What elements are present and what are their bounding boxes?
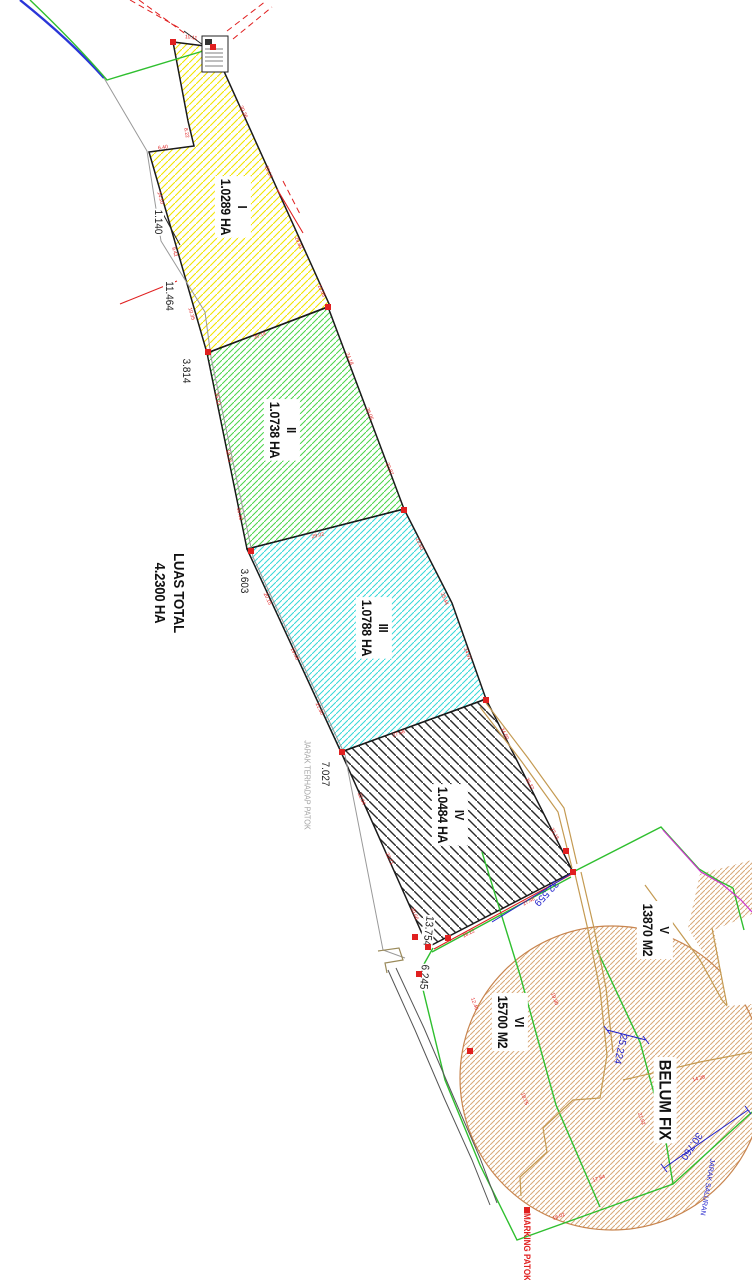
parcel-label-1: I 1.0289 HA: [215, 176, 251, 238]
belum-fix-label: BELUM FIX: [653, 1057, 676, 1143]
measurement-7027: 7.027: [319, 761, 331, 788]
corner-marker: [570, 869, 576, 875]
corner-marker: [170, 39, 176, 45]
marking-patok-label: MARKING PATOK: [522, 1212, 532, 1280]
corner-marker: [445, 935, 451, 941]
corner-marker: [210, 44, 216, 50]
corner-marker: [325, 304, 331, 310]
parcel-label-4: IV 1.0484 HA: [432, 784, 468, 846]
parcel-1-numeral: I: [234, 206, 250, 209]
corner-marker: [425, 944, 431, 950]
corner-marker: [563, 848, 569, 854]
parcel-1-area: 1.0289 HA: [216, 179, 234, 236]
corner-marker: [248, 548, 254, 554]
bracket-structure: [378, 948, 403, 973]
parcel-label-5: V 13870 M2: [637, 901, 673, 959]
parcel-3-numeral: III: [375, 624, 391, 633]
corner-marker: [483, 697, 489, 703]
corner-marker: [339, 749, 345, 755]
river-line-blue: [20, 0, 104, 78]
parcel-label-3: III 1.0788 HA: [356, 597, 392, 659]
parcel-2-green: [207, 307, 404, 549]
parcel-2-area: 1.0738 HA: [265, 402, 283, 459]
measurement-3814: 3.814: [180, 358, 192, 385]
total-line1: LUAS TOTAL: [168, 553, 187, 633]
corner-marker: [416, 971, 422, 977]
measurement-6245: 6.245: [417, 963, 431, 990]
parcel-2-numeral: II: [283, 427, 299, 433]
measurement-3603: 3.603: [238, 568, 250, 595]
parcel-3-area: 1.0788 HA: [357, 600, 375, 657]
parcel-label-2: II 1.0738 HA: [264, 399, 300, 461]
total-area-label: LUAS TOTAL 4.2300 HA: [148, 550, 188, 635]
jarak-terhadap-patok-label: JARAK TERHADAP PATOK: [303, 739, 312, 830]
corner-marker: [412, 934, 418, 940]
corner-marker: [467, 1048, 473, 1054]
legend-box: [202, 36, 228, 72]
parcel-label-6: VI 15700 M2: [492, 993, 528, 1051]
measurement-1140: 1.140: [152, 209, 164, 236]
parcel-5-numeral: V: [656, 926, 672, 933]
land-survey-drawing: I 1.0289 HA II 1.0738 HA III 1.0788 HA I…: [0, 0, 752, 1280]
parcel-6-area: 15700 M2: [493, 996, 511, 1049]
total-line2: 4.2300 HA: [149, 563, 168, 624]
parcel-4-area: 1.0484 HA: [433, 787, 451, 844]
parcel-4-numeral: IV: [451, 810, 467, 820]
corner-marker: [205, 349, 211, 355]
parcel-6-numeral: VI: [511, 1017, 527, 1027]
corner-marker: [524, 1207, 530, 1213]
corner-marker: [401, 507, 407, 513]
measurement-11464: 11.464: [163, 280, 175, 311]
parcel-5-area: 13870 M2: [638, 904, 656, 957]
